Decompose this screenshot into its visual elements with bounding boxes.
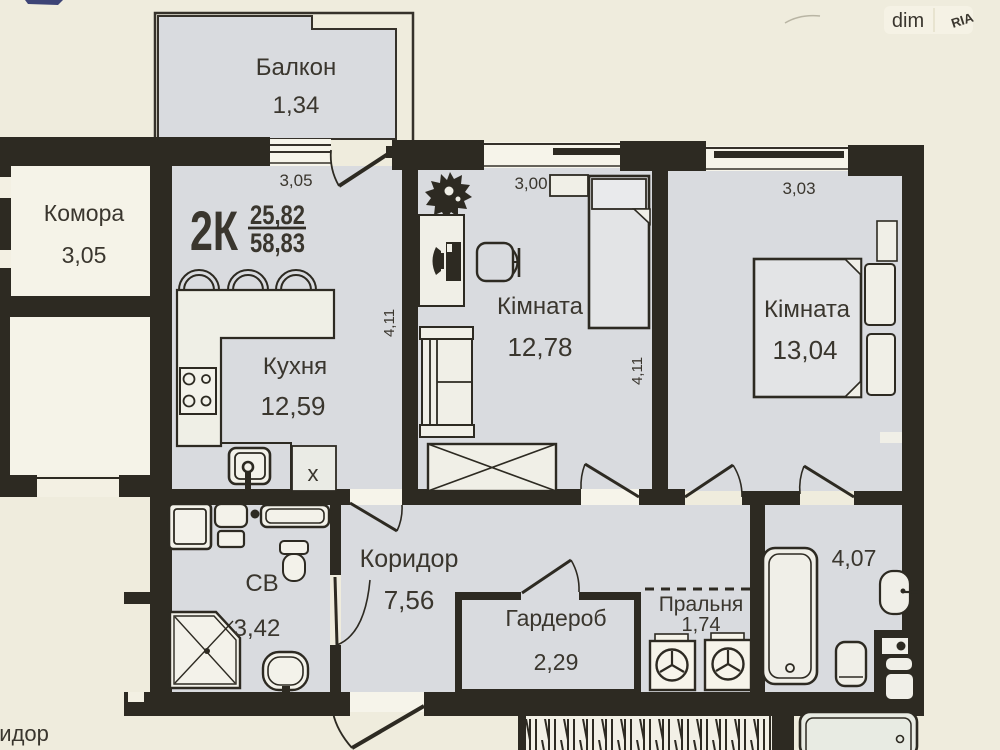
svg-text:3,42: 3,42 — [234, 615, 281, 642]
svg-text:Гардероб: Гардероб — [505, 605, 606, 631]
svg-text:25,82: 25,82 — [250, 200, 305, 230]
svg-text:7,56: 7,56 — [384, 585, 435, 615]
svg-text:4,07: 4,07 — [832, 545, 877, 571]
svg-text:13,04: 13,04 — [772, 335, 837, 365]
svg-text:3,00: 3,00 — [514, 174, 547, 193]
svg-text:4,11: 4,11 — [381, 309, 398, 337]
svg-text:2,29: 2,29 — [534, 649, 579, 675]
svg-text:12,59: 12,59 — [260, 391, 325, 421]
svg-text:3,05: 3,05 — [62, 242, 107, 268]
svg-text:4,11: 4,11 — [629, 357, 646, 385]
svg-text:Коридор: Коридор — [0, 721, 49, 746]
svg-text:Пральня: Пральня — [659, 593, 744, 616]
svg-text:3,05: 3,05 — [279, 171, 312, 190]
svg-text:12,78: 12,78 — [507, 332, 572, 362]
svg-text:Кімната: Кімната — [497, 293, 584, 320]
svg-text:Кімната: Кімната — [764, 296, 851, 323]
svg-text:1,34: 1,34 — [273, 92, 320, 119]
svg-text:x: x — [308, 461, 319, 486]
svg-text:Кухня: Кухня — [263, 353, 327, 380]
svg-text:Балкон: Балкон — [256, 54, 336, 81]
svg-text:dim: dim — [892, 10, 924, 32]
svg-text:3,03: 3,03 — [782, 179, 815, 198]
svg-text:2К: 2К — [190, 199, 239, 262]
svg-text:Комора: Комора — [44, 200, 125, 226]
svg-text:Коридор: Коридор — [360, 545, 459, 573]
svg-text:58,83: 58,83 — [250, 228, 305, 258]
svg-text:СВ: СВ — [245, 570, 278, 597]
